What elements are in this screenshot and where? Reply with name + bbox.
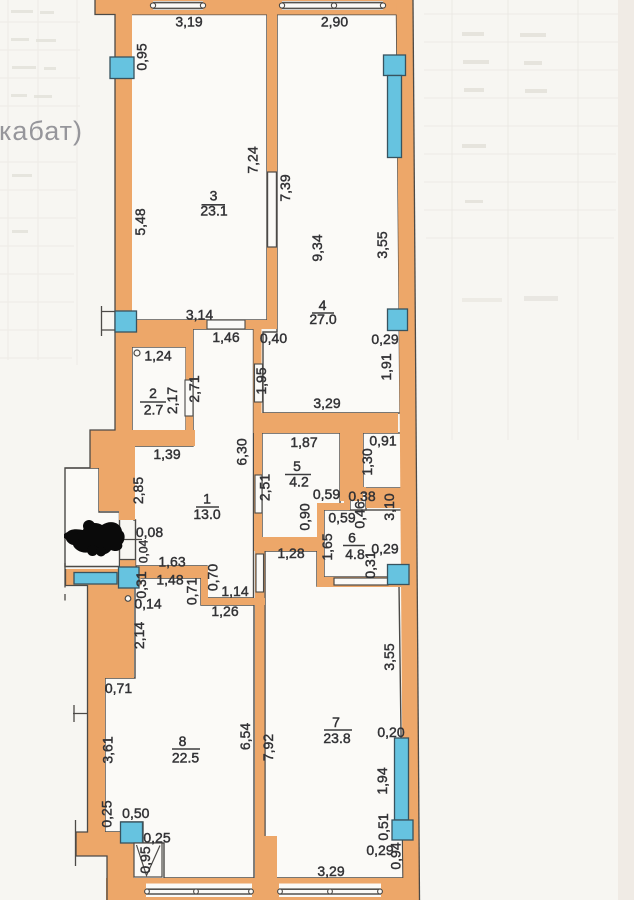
- svg-text:2.7: 2.7: [144, 402, 164, 418]
- svg-text:0,91: 0,91: [369, 433, 396, 449]
- svg-text:1,65: 1,65: [319, 533, 335, 560]
- svg-text:0,20: 0,20: [377, 724, 404, 740]
- svg-text:0,25: 0,25: [143, 830, 170, 846]
- svg-text:0,95: 0,95: [137, 846, 153, 873]
- svg-text:3,55: 3,55: [381, 643, 397, 670]
- svg-text:3,55: 3,55: [374, 231, 390, 258]
- svg-text:9,34: 9,34: [309, 234, 325, 261]
- svg-text:1,87: 1,87: [290, 434, 317, 450]
- svg-text:(кабат): (кабат): [0, 116, 83, 146]
- svg-text:1,39: 1,39: [153, 446, 180, 462]
- svg-text:1,14: 1,14: [221, 583, 248, 599]
- svg-text:0,25: 0,25: [98, 800, 114, 827]
- svg-text:1,24: 1,24: [144, 348, 171, 364]
- svg-text:0,31: 0,31: [133, 571, 149, 598]
- svg-text:3,14: 3,14: [186, 307, 213, 323]
- svg-text:1,26: 1,26: [211, 603, 238, 619]
- svg-text:5,48: 5,48: [132, 208, 148, 235]
- svg-text:22.5: 22.5: [172, 750, 199, 766]
- svg-text:1,48: 1,48: [156, 572, 183, 588]
- svg-text:6: 6: [348, 530, 356, 546]
- svg-text:0,08: 0,08: [136, 524, 163, 540]
- svg-text:0,29: 0,29: [371, 331, 398, 347]
- svg-text:0,71: 0,71: [105, 680, 132, 696]
- svg-text:7,24: 7,24: [245, 146, 261, 173]
- svg-text:0,70: 0,70: [205, 564, 221, 591]
- svg-text:3,10: 3,10: [381, 493, 397, 520]
- svg-text:6,30: 6,30: [234, 438, 250, 465]
- svg-text:5: 5: [293, 458, 301, 474]
- svg-text:2,90: 2,90: [321, 14, 348, 30]
- svg-text:0,31: 0,31: [362, 551, 378, 578]
- svg-text:2,71: 2,71: [186, 375, 202, 402]
- svg-text:2,14: 2,14: [131, 622, 147, 649]
- svg-text:0,14: 0,14: [134, 596, 161, 612]
- svg-text:0,90: 0,90: [297, 503, 313, 530]
- svg-text:7: 7: [332, 714, 340, 730]
- svg-text:2,17: 2,17: [164, 387, 180, 414]
- svg-text:6,54: 6,54: [237, 723, 253, 750]
- svg-text:0,46: 0,46: [352, 501, 368, 528]
- svg-text:13.0: 13.0: [193, 506, 220, 522]
- svg-text:1,94: 1,94: [374, 767, 390, 794]
- svg-text:1,46: 1,46: [212, 329, 239, 345]
- svg-text:1,30: 1,30: [359, 448, 375, 475]
- svg-text:0,71: 0,71: [184, 578, 200, 605]
- svg-text:0,95: 0,95: [134, 43, 150, 70]
- svg-text:1,95: 1,95: [253, 367, 269, 394]
- svg-text:3,29: 3,29: [313, 395, 340, 411]
- svg-text:23.8: 23.8: [323, 730, 350, 746]
- svg-text:2,85: 2,85: [130, 477, 146, 504]
- svg-text:0,04: 0,04: [137, 539, 151, 563]
- svg-text:0,59: 0,59: [313, 486, 340, 502]
- svg-text:3,29: 3,29: [317, 863, 344, 879]
- svg-text:1: 1: [203, 491, 211, 507]
- svg-text:7,39: 7,39: [277, 174, 293, 201]
- svg-text:0,40: 0,40: [260, 330, 287, 346]
- svg-text:0,51: 0,51: [375, 813, 391, 840]
- svg-text:8: 8: [179, 733, 187, 749]
- svg-text:1,28: 1,28: [277, 545, 304, 561]
- svg-text:0,94: 0,94: [388, 842, 404, 869]
- svg-text:1,63: 1,63: [158, 554, 185, 570]
- svg-text:3,61: 3,61: [100, 736, 116, 763]
- svg-text:7,92: 7,92: [260, 734, 276, 761]
- svg-text:3: 3: [210, 188, 218, 204]
- svg-text:2,51: 2,51: [257, 474, 273, 501]
- svg-text:4.2: 4.2: [289, 474, 309, 490]
- svg-text:1,91: 1,91: [378, 353, 394, 380]
- svg-text:2: 2: [149, 385, 157, 401]
- svg-text:0,50: 0,50: [122, 805, 149, 821]
- svg-text:3,19: 3,19: [175, 14, 202, 30]
